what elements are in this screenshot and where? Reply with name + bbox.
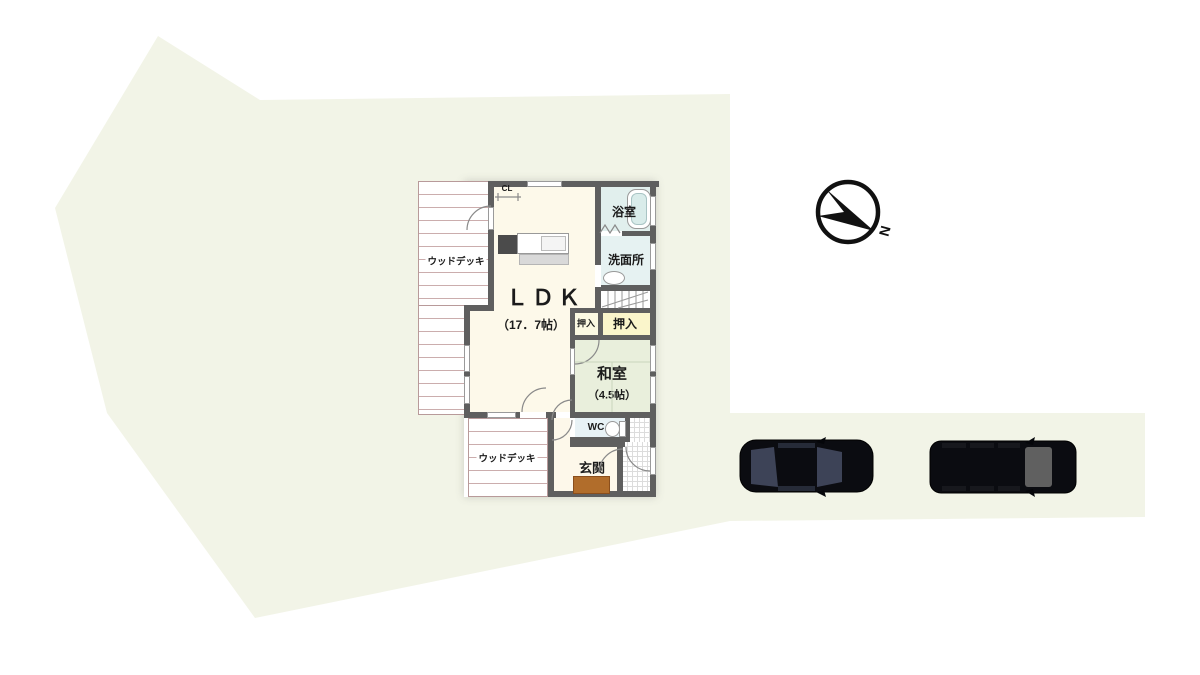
door-arc-washitsu — [575, 340, 599, 364]
door-arc-entrance — [599, 449, 623, 473]
car-suv — [930, 437, 1076, 497]
compass-north-arrow-icon — [818, 189, 874, 231]
door-arc-front-door — [626, 447, 650, 471]
overlay-layer: N — [0, 0, 1200, 675]
door-arc-hall-lower — [552, 420, 572, 440]
site-plan-canvas: ＬＤＫ （17．7帖） 和室 （4.5帖） 浴室 洗面所 押入 押入 WC 玄関… — [0, 0, 1200, 675]
folding-door-bath — [600, 225, 620, 233]
tatami-lines — [575, 362, 650, 412]
compass: N — [818, 182, 894, 242]
car-sedan-rear-window — [751, 447, 778, 487]
car-sedan — [740, 437, 873, 497]
car-sedan-windshield — [817, 447, 842, 487]
stairs-treads — [602, 291, 648, 308]
door-arc-ldk-hall — [522, 388, 546, 412]
compass-north-label: N — [876, 224, 894, 238]
closet-hanger-symbol — [495, 193, 521, 201]
door-arc-hall-upper — [552, 400, 572, 420]
car-suv-windshield — [1025, 447, 1052, 487]
door-arc-deck — [467, 206, 491, 230]
